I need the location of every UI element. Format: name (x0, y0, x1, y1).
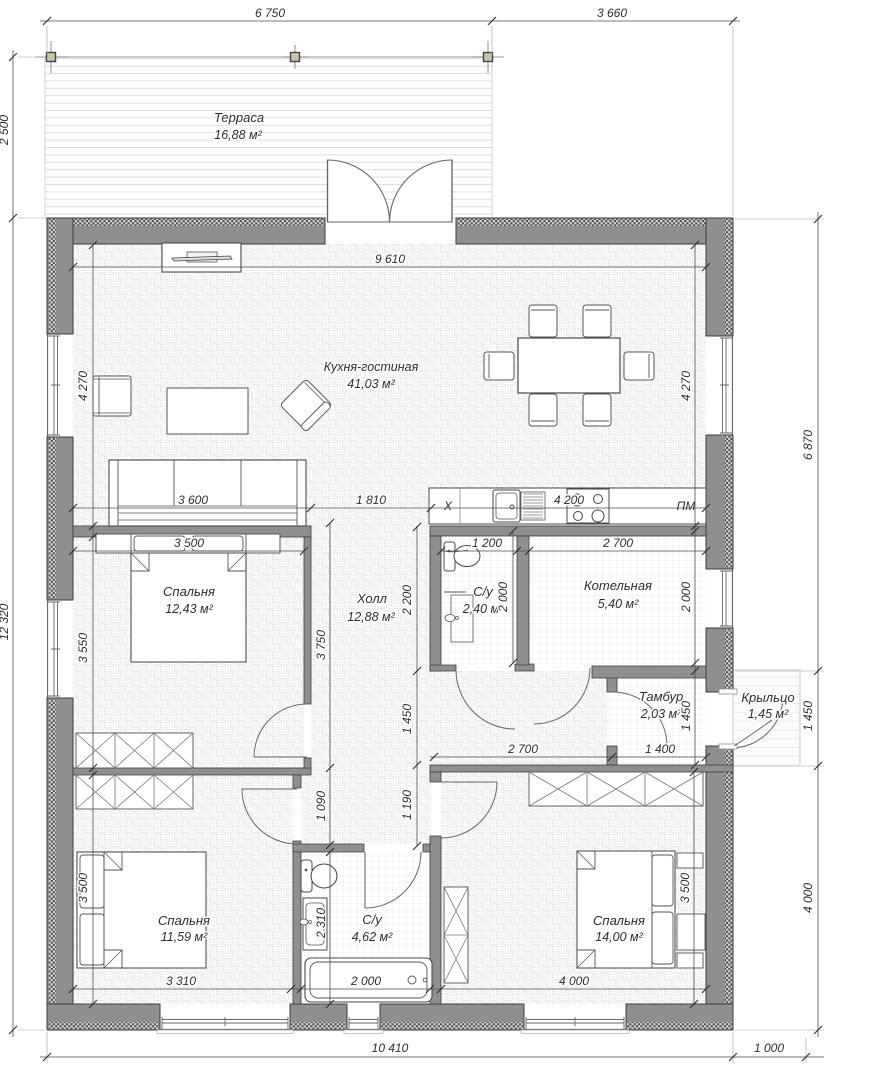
svg-text:9 610: 9 610 (375, 252, 405, 266)
svg-text:3 500: 3 500 (76, 873, 90, 903)
svg-text:3 500: 3 500 (174, 536, 204, 550)
svg-text:3 310: 3 310 (166, 974, 196, 988)
svg-text:Спальня: Спальня (593, 913, 645, 928)
svg-text:1 810: 1 810 (356, 493, 386, 507)
svg-text:2 700: 2 700 (507, 742, 538, 756)
svg-text:1 450: 1 450 (400, 704, 414, 734)
svg-text:5,40 м²: 5,40 м² (598, 597, 639, 611)
svg-text:1 190: 1 190 (400, 790, 414, 820)
svg-text:3 660: 3 660 (597, 6, 627, 20)
svg-text:3 750: 3 750 (314, 630, 328, 660)
svg-text:4 200: 4 200 (554, 493, 584, 507)
svg-text:1 000: 1 000 (754, 1041, 784, 1055)
svg-text:4 270: 4 270 (679, 371, 693, 401)
svg-text:2 000: 2 000 (496, 582, 510, 613)
svg-text:3 500: 3 500 (678, 873, 692, 903)
svg-text:Крыльцо: Крыльцо (741, 690, 794, 705)
svg-text:4 270: 4 270 (76, 371, 90, 401)
svg-text:12 320: 12 320 (0, 603, 11, 640)
svg-text:2 000: 2 000 (350, 974, 381, 988)
svg-text:Спальня: Спальня (158, 913, 210, 928)
svg-text:1 450: 1 450 (801, 701, 815, 731)
svg-text:Терраса: Терраса (214, 110, 264, 125)
svg-text:Спальня: Спальня (163, 584, 215, 599)
svg-text:Тамбур: Тамбур (639, 689, 684, 704)
svg-text:ПМ: ПМ (677, 499, 696, 513)
svg-text:Котельная: Котельная (584, 578, 652, 593)
svg-text:1 090: 1 090 (314, 791, 328, 821)
svg-text:2 700: 2 700 (602, 536, 633, 550)
svg-text:1 200: 1 200 (472, 536, 502, 550)
svg-text:2 500: 2 500 (0, 115, 11, 146)
svg-text:41,03 м²: 41,03 м² (347, 377, 395, 391)
svg-text:6 750: 6 750 (255, 6, 285, 20)
svg-text:11,59 м²: 11,59 м² (161, 930, 208, 944)
svg-text:Кухня-гостиная: Кухня-гостиная (324, 360, 419, 374)
svg-text:3 550: 3 550 (76, 633, 90, 663)
svg-text:12,43 м²: 12,43 м² (165, 602, 213, 616)
svg-text:1 400: 1 400 (645, 742, 675, 756)
svg-text:14,00 м²: 14,00 м² (595, 930, 643, 944)
svg-text:2 200: 2 200 (400, 585, 414, 616)
svg-text:Холл: Холл (356, 591, 388, 606)
svg-text:С/у: С/у (473, 584, 494, 599)
svg-text:2 310: 2 310 (314, 908, 328, 939)
svg-text:2,03 м²: 2,03 м² (640, 707, 682, 721)
svg-text:X: X (443, 499, 453, 513)
svg-text:1,45 м²: 1,45 м² (748, 707, 789, 721)
svg-text:6 870: 6 870 (801, 430, 815, 460)
svg-text:4 000: 4 000 (801, 883, 815, 913)
svg-text:10 410: 10 410 (372, 1041, 409, 1055)
svg-text:С/у: С/у (362, 912, 383, 927)
svg-text:2 000: 2 000 (679, 582, 693, 613)
svg-text:1 450: 1 450 (679, 701, 693, 731)
svg-text:12,88 м²: 12,88 м² (347, 610, 395, 624)
svg-text:16,88 м²: 16,88 м² (214, 128, 262, 142)
svg-text:3 600: 3 600 (178, 493, 208, 507)
svg-text:4,62 м²: 4,62 м² (352, 930, 393, 944)
svg-text:4 000: 4 000 (559, 974, 589, 988)
